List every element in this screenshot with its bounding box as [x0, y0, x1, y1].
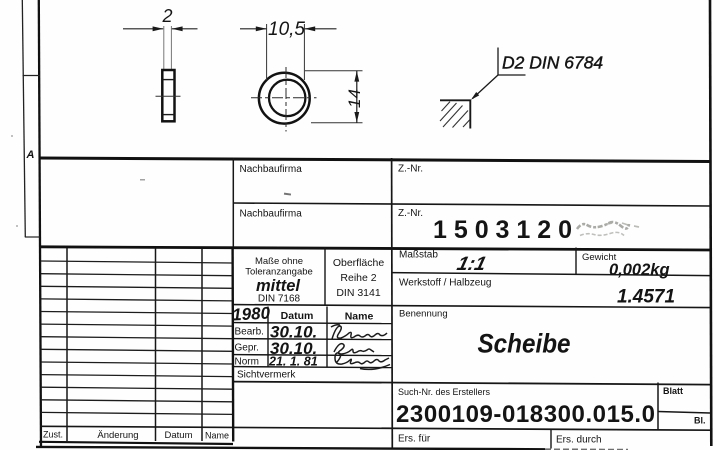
svg-text:2: 2 [162, 6, 173, 26]
svg-text:Maße ohne: Maße ohne [255, 256, 303, 267]
svg-text:Datum: Datum [281, 310, 314, 322]
svg-text:DIN 7168: DIN 7168 [258, 294, 301, 305]
svg-text:0,002kg: 0,002kg [609, 261, 670, 279]
svg-text:2300109-018300.015.0: 2300109-018300.015.0 [396, 401, 655, 428]
svg-text:10,5: 10,5 [268, 19, 305, 40]
svg-text:Reihe 2: Reihe 2 [340, 272, 376, 284]
svg-text:Toleranzangabe: Toleranzangabe [245, 267, 313, 278]
svg-text:Datum: Datum [165, 430, 193, 441]
svg-text:Z.-Nr.: Z.-Nr. [398, 208, 423, 219]
svg-text:Bl.: Bl. [694, 416, 706, 426]
svg-text:Scheibe: Scheibe [478, 329, 571, 359]
svg-text:Ers. für: Ers. für [398, 434, 431, 445]
svg-text:21. 1. 81: 21. 1. 81 [268, 355, 318, 369]
svg-text:1.4571: 1.4571 [617, 287, 675, 308]
svg-text:Zust.: Zust. [43, 430, 63, 440]
svg-text:Norm: Norm [235, 357, 259, 368]
svg-text:Z.-Nr.: Z.-Nr. [398, 164, 423, 175]
svg-text:Werkstoff / Halbzeug: Werkstoff / Halbzeug [399, 278, 491, 289]
svg-text:Oberfläche: Oberfläche [333, 257, 385, 269]
svg-text:1 5 0 3 1 2 0: 1 5 0 3 1 2 0 [433, 216, 572, 244]
svg-text:Nachbaufirma: Nachbaufirma [240, 209, 303, 220]
svg-text:Änderung: Änderung [97, 430, 138, 441]
svg-text:Name: Name [345, 311, 374, 323]
svg-text:Such-Nr. des Erstellers: Such-Nr. des Erstellers [398, 387, 491, 397]
svg-text:Maßstab: Maßstab [399, 250, 438, 261]
svg-text:D2 DIN 6784: D2 DIN 6784 [502, 53, 603, 73]
svg-text:Gepr.: Gepr. [235, 343, 259, 354]
svg-text:mittel: mittel [256, 277, 300, 295]
svg-text:Ers. durch: Ers. durch [556, 435, 602, 446]
svg-text:Blatt: Blatt [663, 386, 683, 396]
svg-text:A: A [26, 149, 35, 161]
svg-text:DIN 3141: DIN 3141 [336, 287, 381, 299]
svg-text:Sichtvermerk: Sichtvermerk [237, 370, 296, 381]
svg-text:Bearb.: Bearb. [235, 327, 264, 338]
svg-text:14: 14 [345, 89, 364, 108]
svg-text:1:1: 1:1 [455, 253, 489, 275]
svg-text:Nachbaufirma: Nachbaufirma [240, 164, 303, 175]
svg-text:1980: 1980 [232, 304, 271, 325]
svg-text:Name: Name [205, 430, 229, 440]
svg-text:Benennung: Benennung [399, 309, 448, 320]
